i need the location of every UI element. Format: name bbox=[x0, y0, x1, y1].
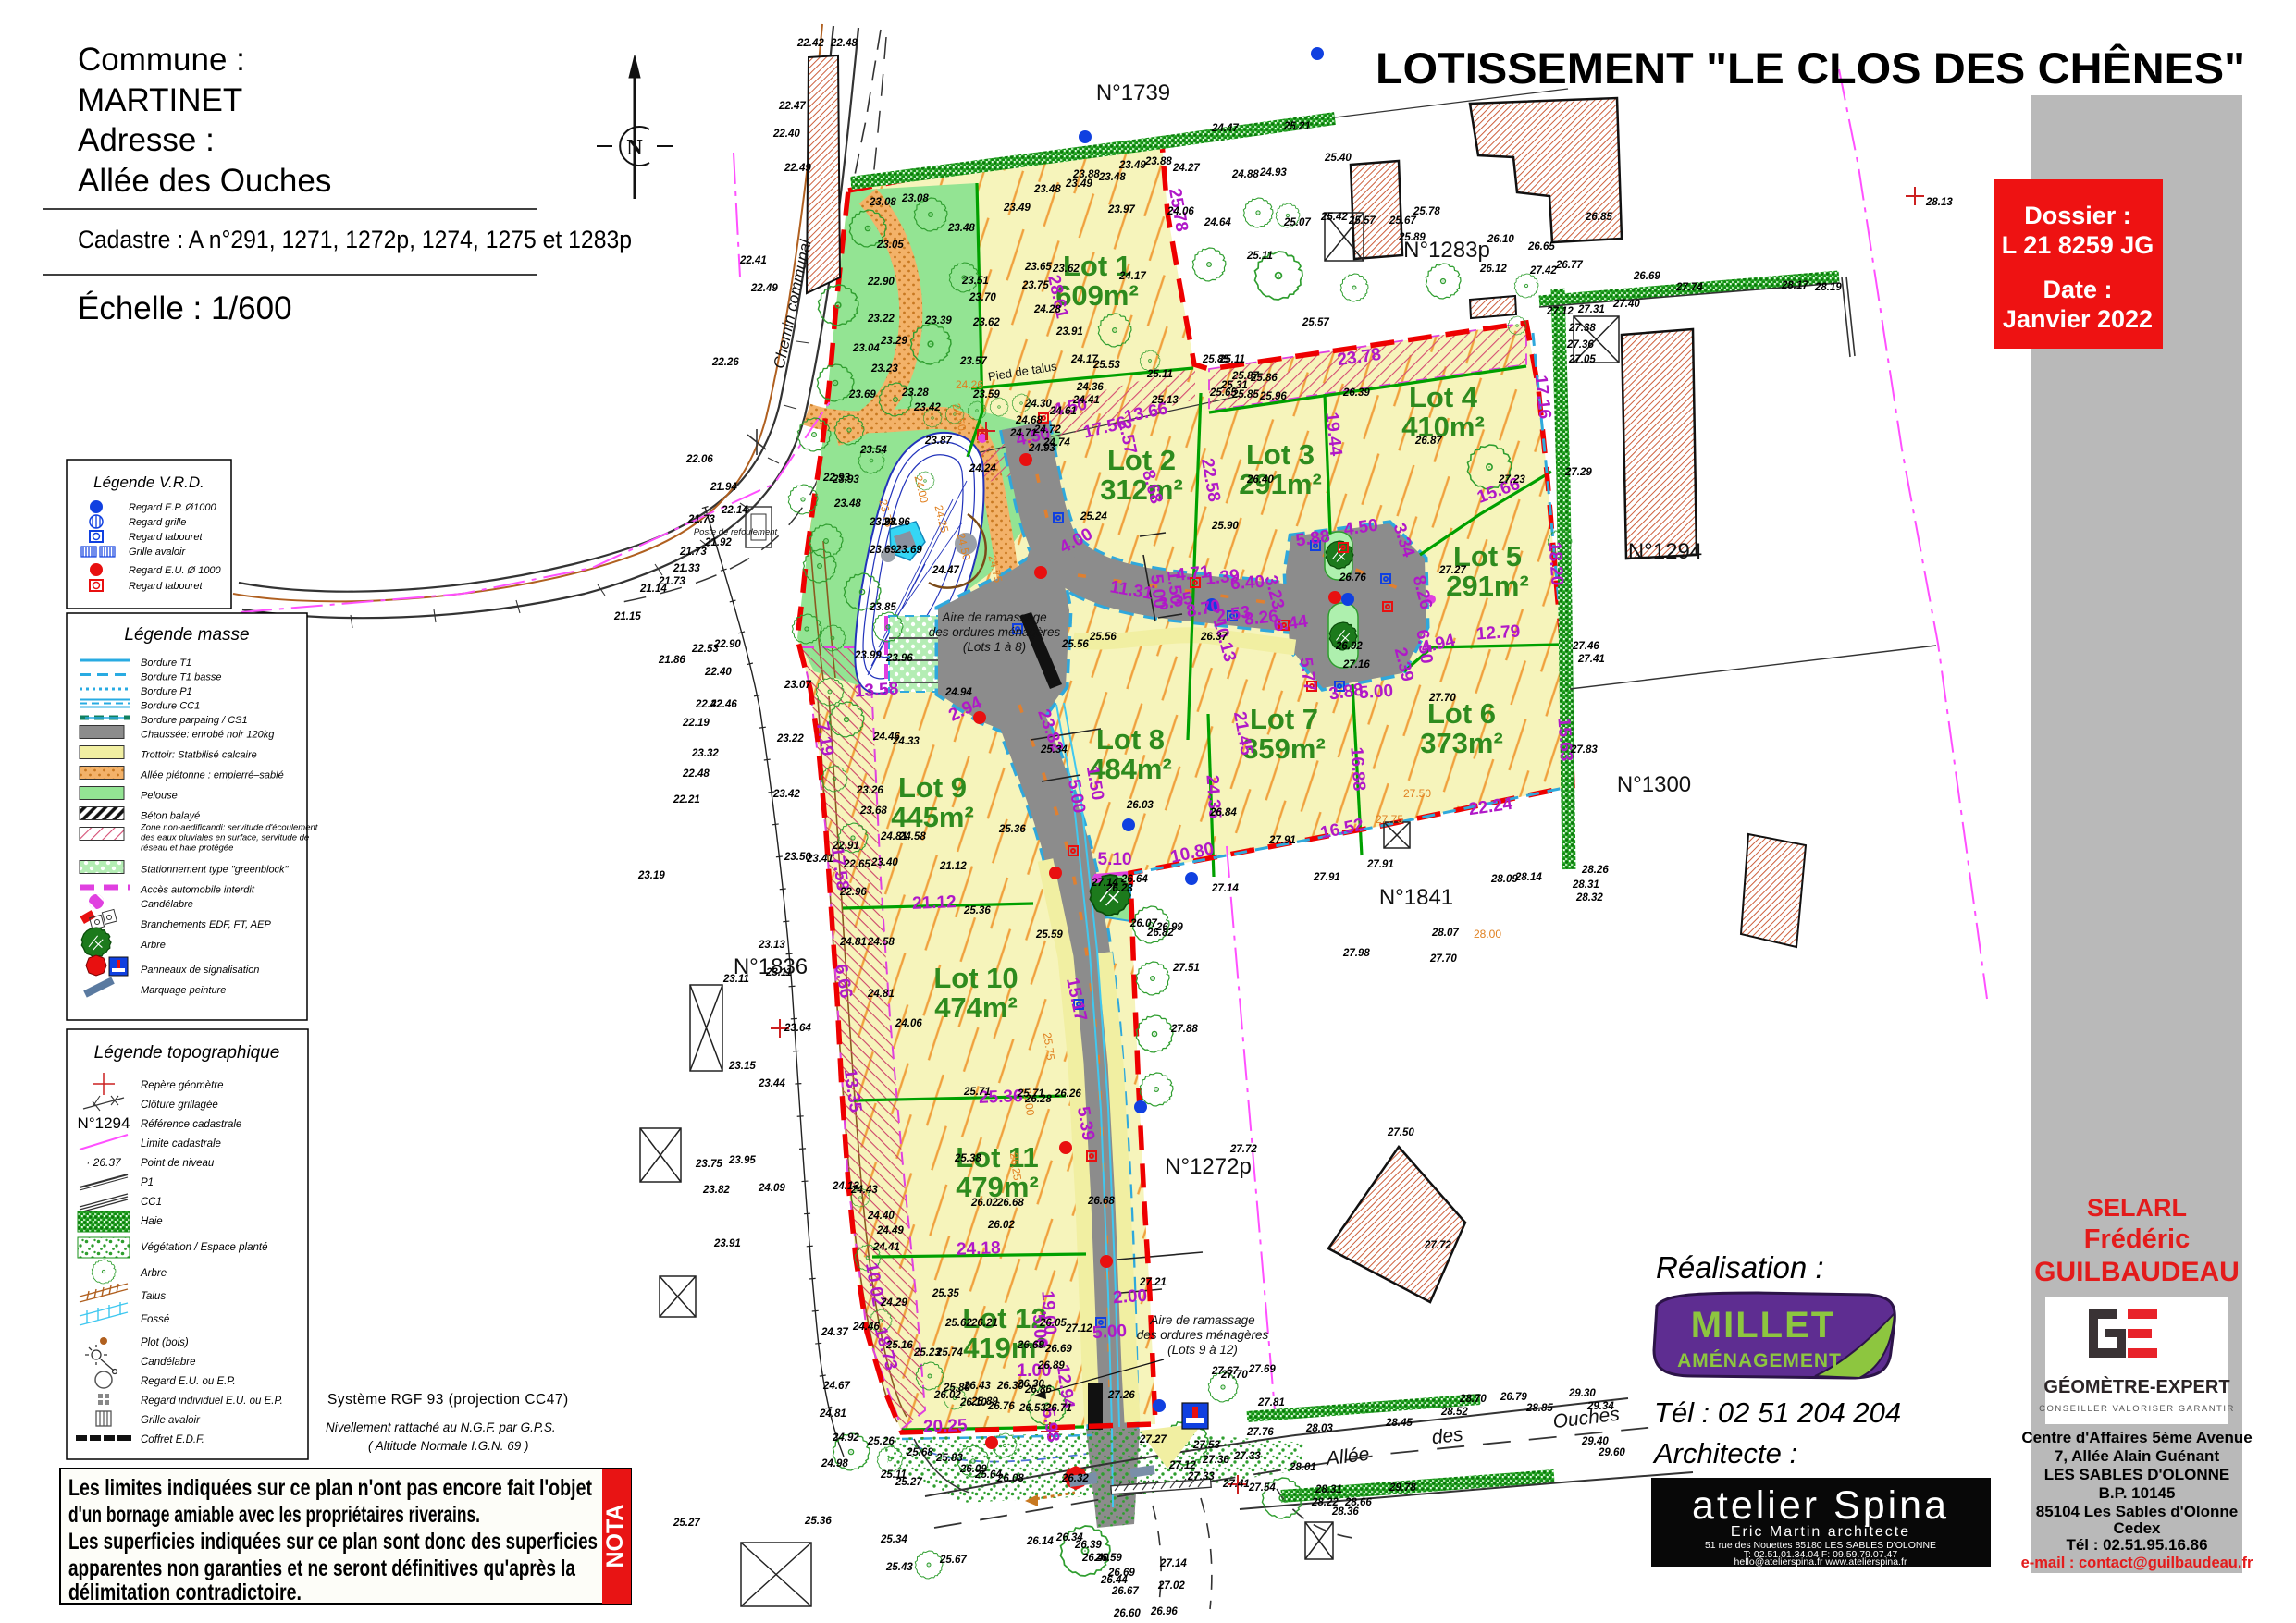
svg-text:21.12: 21.12 bbox=[912, 892, 957, 914]
svg-text:21.73: 21.73 bbox=[679, 547, 707, 558]
svg-text:Lot 3: Lot 3 bbox=[1246, 438, 1315, 471]
svg-text:23.62: 23.62 bbox=[1052, 264, 1080, 275]
svg-text:25.36: 25.36 bbox=[804, 1516, 832, 1527]
svg-text:25.43: 25.43 bbox=[885, 1562, 913, 1573]
svg-text:28.26: 28.26 bbox=[1581, 865, 1609, 876]
svg-text:25.23: 25.23 bbox=[913, 1347, 941, 1359]
svg-text:27.14: 27.14 bbox=[1211, 883, 1239, 894]
svg-text:21.92: 21.92 bbox=[704, 537, 732, 548]
svg-text:P1: P1 bbox=[141, 1177, 154, 1188]
svg-text:23.68: 23.68 bbox=[859, 805, 887, 817]
svg-text:23.96: 23.96 bbox=[885, 653, 913, 664]
svg-text:Allée des Ouches: Allée des Ouches bbox=[78, 163, 331, 199]
svg-text:Accès automobile interdit: Accès automobile interdit bbox=[140, 885, 255, 896]
svg-text:23.23: 23.23 bbox=[870, 363, 898, 375]
svg-text:24.72: 24.72 bbox=[1033, 424, 1061, 436]
svg-text:5.10: 5.10 bbox=[1098, 850, 1132, 869]
svg-text:25.36: 25.36 bbox=[963, 905, 991, 916]
svg-text:27.02: 27.02 bbox=[1157, 1580, 1185, 1592]
svg-text:25.56: 25.56 bbox=[1089, 632, 1117, 643]
svg-text:Bordure T1: Bordure T1 bbox=[141, 658, 191, 669]
svg-text:22.48: 22.48 bbox=[830, 38, 858, 49]
svg-text:25.40: 25.40 bbox=[1324, 153, 1352, 164]
svg-text:27.12: 27.12 bbox=[1065, 1323, 1092, 1334]
svg-text:373m²: 373m² bbox=[1420, 727, 1503, 759]
svg-text:24.06: 24.06 bbox=[1167, 206, 1194, 217]
svg-text:25.13: 25.13 bbox=[1151, 395, 1179, 406]
svg-text:26.02: 26.02 bbox=[970, 1198, 998, 1209]
svg-text:N°1300: N°1300 bbox=[1617, 772, 1691, 797]
svg-text:23.69: 23.69 bbox=[848, 389, 876, 400]
svg-text:26.14: 26.14 bbox=[1026, 1536, 1054, 1547]
svg-text:23.64: 23.64 bbox=[784, 1023, 811, 1034]
svg-text:23.48: 23.48 bbox=[947, 223, 975, 234]
svg-text:Plot (bois): Plot (bois) bbox=[141, 1337, 189, 1348]
svg-text:2.00: 2.00 bbox=[1112, 1286, 1147, 1309]
svg-text:26.37: 26.37 bbox=[1200, 632, 1228, 643]
svg-text:28.19: 28.19 bbox=[1814, 282, 1842, 293]
svg-text:25.21: 25.21 bbox=[1283, 121, 1311, 132]
svg-text:des: des bbox=[1430, 1423, 1464, 1448]
svg-text:21.12: 21.12 bbox=[939, 861, 967, 872]
svg-text:26.85: 26.85 bbox=[1585, 212, 1612, 223]
svg-text:22.14: 22.14 bbox=[721, 505, 748, 516]
svg-text:( Altitude Normale I.G.N. 6: ( Altitude Normale I.G.N. 69 ) bbox=[368, 1439, 529, 1453]
svg-text:e-mail : contact@guilbaudeau.f: e-mail : contact@guilbaudeau.fr bbox=[2021, 1555, 2253, 1571]
svg-text:MILLET: MILLET bbox=[1691, 1305, 1835, 1346]
svg-text:23.05: 23.05 bbox=[876, 240, 904, 251]
svg-text:27.26: 27.26 bbox=[1107, 1390, 1135, 1401]
svg-text:23.42: 23.42 bbox=[772, 789, 800, 800]
svg-text:LOTISSEMENT "LE CLOS DES CHÊNE: LOTISSEMENT "LE CLOS DES CHÊNES" bbox=[1376, 43, 2245, 92]
svg-text:26.69: 26.69 bbox=[1633, 271, 1660, 282]
svg-text:27.74: 27.74 bbox=[1675, 282, 1703, 293]
svg-text:Nivellement rattaché au N.G: Nivellement rattaché au N.G.F. par G.P.S… bbox=[326, 1420, 556, 1434]
svg-text:Regard E.U. ou E.P.: Regard E.U. ou E.P. bbox=[141, 1376, 236, 1387]
svg-text:25.90: 25.90 bbox=[1211, 521, 1239, 532]
svg-text:27.53: 27.53 bbox=[1192, 1440, 1220, 1451]
svg-text:23.11: 23.11 bbox=[722, 974, 749, 985]
svg-text:25.35: 25.35 bbox=[932, 1288, 959, 1299]
svg-text:25.57: 25.57 bbox=[1348, 215, 1376, 227]
svg-text:26.40: 26.40 bbox=[1246, 474, 1274, 486]
svg-text:Regard E.U. Ø 1000: Regard E.U. Ø 1000 bbox=[129, 565, 222, 576]
svg-text:26.21: 26.21 bbox=[970, 1318, 998, 1329]
svg-text:26.10: 26.10 bbox=[1487, 234, 1514, 245]
svg-text:Légende masse: Légende masse bbox=[124, 625, 249, 645]
svg-text:27.29: 27.29 bbox=[1564, 467, 1592, 478]
svg-text:N: N bbox=[626, 136, 643, 160]
svg-text:24.33: 24.33 bbox=[892, 736, 920, 747]
svg-text:Légende topographique: Légende topographique bbox=[94, 1043, 280, 1063]
svg-text:Regard individuel E.U. ou E.P.: Regard individuel E.U. ou E.P. bbox=[141, 1396, 283, 1407]
svg-text:27.14: 27.14 bbox=[1091, 878, 1118, 889]
svg-text:23.85: 23.85 bbox=[869, 602, 896, 613]
svg-text:Référence cadastrale: Référence cadastrale bbox=[141, 1119, 241, 1130]
svg-text:28.45: 28.45 bbox=[1385, 1418, 1413, 1429]
svg-text:25.62: 25.62 bbox=[944, 1318, 972, 1329]
svg-text:Lot 4: Lot 4 bbox=[1409, 381, 1478, 413]
svg-text:26.92: 26.92 bbox=[1335, 641, 1363, 652]
svg-text:Eric Martin architecte: Eric Martin architecte bbox=[1731, 1524, 1910, 1540]
svg-text:23.97: 23.97 bbox=[1107, 204, 1135, 215]
svg-text:23.87: 23.87 bbox=[924, 436, 952, 447]
svg-text:26.03: 26.03 bbox=[1126, 800, 1154, 811]
svg-text:27.40: 27.40 bbox=[1612, 299, 1640, 310]
svg-text:28.01: 28.01 bbox=[1289, 1462, 1316, 1473]
svg-text:21.73: 21.73 bbox=[687, 514, 715, 525]
svg-text:24.92: 24.92 bbox=[832, 1432, 859, 1444]
svg-text:Grille avaloir: Grille avaloir bbox=[141, 1415, 201, 1426]
svg-text:24.29: 24.29 bbox=[880, 1297, 907, 1309]
svg-text:29.30: 29.30 bbox=[1568, 1388, 1596, 1399]
svg-text:Lot 8: Lot 8 bbox=[1096, 723, 1165, 756]
svg-text:26.67: 26.67 bbox=[1111, 1586, 1139, 1597]
svg-text:23.42: 23.42 bbox=[913, 402, 941, 413]
svg-text:24.74: 24.74 bbox=[1043, 437, 1070, 449]
svg-text:23.50: 23.50 bbox=[784, 852, 811, 863]
svg-text:27.72: 27.72 bbox=[1229, 1144, 1257, 1155]
svg-text:N°1272p: N°1272p bbox=[1165, 1154, 1252, 1179]
svg-text:24.67: 24.67 bbox=[822, 1381, 850, 1392]
svg-text:24.17: 24.17 bbox=[1118, 271, 1146, 282]
svg-text:22.46: 22.46 bbox=[710, 699, 737, 710]
svg-text:29.60: 29.60 bbox=[1598, 1447, 1625, 1458]
svg-text:22.21: 22.21 bbox=[673, 794, 700, 805]
svg-text:27.88: 27.88 bbox=[1170, 1024, 1198, 1035]
svg-text:Fossé: Fossé bbox=[141, 1314, 169, 1325]
svg-text:24.47: 24.47 bbox=[932, 565, 959, 576]
svg-text:Chaussée: enrobé noir 120kg: Chaussée: enrobé noir 120kg bbox=[141, 730, 275, 741]
svg-text:25.53: 25.53 bbox=[1092, 360, 1120, 371]
svg-text:27.46: 27.46 bbox=[1572, 641, 1599, 652]
svg-text:23.15: 23.15 bbox=[728, 1061, 756, 1072]
svg-text:28.03: 28.03 bbox=[1305, 1423, 1333, 1434]
svg-text:Point de niveau: Point de niveau bbox=[141, 1158, 215, 1169]
svg-text:27.31: 27.31 bbox=[1577, 304, 1605, 315]
svg-text:24.93: 24.93 bbox=[1259, 167, 1287, 178]
svg-text:24.37: 24.37 bbox=[821, 1327, 848, 1338]
svg-text:27.27: 27.27 bbox=[1438, 565, 1466, 576]
svg-text:410m²: 410m² bbox=[1401, 411, 1485, 443]
svg-text:25.26: 25.26 bbox=[867, 1436, 895, 1447]
svg-text:Lot 10: Lot 10 bbox=[933, 962, 1018, 994]
svg-text:27.70: 27.70 bbox=[1429, 953, 1457, 965]
svg-text:25.96: 25.96 bbox=[1259, 391, 1287, 402]
svg-text:23.54: 23.54 bbox=[859, 445, 887, 456]
svg-text:26.30: 26.30 bbox=[1017, 1379, 1044, 1390]
svg-text:23.22: 23.22 bbox=[776, 733, 804, 744]
svg-text:23.39: 23.39 bbox=[924, 315, 952, 326]
svg-text:28.70: 28.70 bbox=[1459, 1394, 1487, 1405]
svg-text:27.36: 27.36 bbox=[1202, 1455, 1229, 1466]
svg-text:Stationnement type "greenblock: Stationnement type "greenblock" bbox=[141, 865, 290, 876]
svg-text:27.83: 27.83 bbox=[1570, 744, 1598, 756]
svg-text:25.56: 25.56 bbox=[1061, 639, 1089, 650]
svg-text:24.47: 24.47 bbox=[1211, 123, 1239, 134]
svg-text:N°1294: N°1294 bbox=[78, 1114, 130, 1132]
svg-text:24.71: 24.71 bbox=[1009, 428, 1037, 439]
svg-text:atelier Spina: atelier Spina bbox=[1692, 1483, 1949, 1528]
svg-text:5.00: 5.00 bbox=[1092, 1322, 1127, 1344]
svg-text:23.59: 23.59 bbox=[972, 389, 1000, 400]
svg-text:Cedex: Cedex bbox=[2113, 1519, 2161, 1537]
svg-text:Tél : 02 51 204 204: Tél : 02 51 204 204 bbox=[1654, 1396, 1901, 1429]
svg-text:22.19: 22.19 bbox=[682, 718, 710, 729]
svg-text:23.88: 23.88 bbox=[1144, 156, 1172, 167]
svg-text:85104 Les Sables d'Olonne: 85104 Les Sables d'Olonne bbox=[2036, 1503, 2239, 1520]
svg-text:NOTA: NOTA bbox=[602, 1505, 628, 1568]
svg-text:25.86: 25.86 bbox=[1250, 373, 1278, 384]
svg-text:Haie: Haie bbox=[141, 1216, 163, 1227]
svg-text:23.75: 23.75 bbox=[1021, 280, 1049, 291]
svg-text:27.75: 27.75 bbox=[1376, 813, 1403, 826]
svg-text:27.91: 27.91 bbox=[1268, 835, 1296, 846]
svg-text:23.19: 23.19 bbox=[637, 870, 665, 881]
svg-text:28.32: 28.32 bbox=[1575, 892, 1603, 904]
svg-text:Candélabre: Candélabre bbox=[141, 1357, 195, 1368]
svg-text:25.67: 25.67 bbox=[1389, 215, 1416, 227]
svg-text:26.69: 26.69 bbox=[1044, 1344, 1072, 1355]
svg-text:23.32: 23.32 bbox=[691, 748, 719, 759]
svg-text:23.99: 23.99 bbox=[854, 650, 882, 661]
svg-text:24.98: 24.98 bbox=[821, 1458, 848, 1469]
svg-text:21.15: 21.15 bbox=[613, 611, 641, 622]
svg-text:hello@atelierspina.fr w: hello@atelierspina.fr www.atelierspina.f… bbox=[1734, 1556, 1907, 1568]
svg-text:28.31: 28.31 bbox=[1315, 1484, 1342, 1495]
svg-text:23.91: 23.91 bbox=[713, 1238, 741, 1249]
svg-text:28.00: 28.00 bbox=[1474, 928, 1501, 941]
svg-text:445m²: 445m² bbox=[891, 801, 974, 833]
svg-text:24.06: 24.06 bbox=[895, 1018, 922, 1029]
svg-text:28.17: 28.17 bbox=[1781, 280, 1808, 291]
svg-text:28.14: 28.14 bbox=[1514, 872, 1542, 883]
svg-text:26.99: 26.99 bbox=[1155, 922, 1183, 933]
svg-text:27.72: 27.72 bbox=[1424, 1240, 1451, 1251]
svg-text:22.91: 22.91 bbox=[832, 841, 859, 852]
svg-text:délimitation contradictoire.: délimitation contradictoire. bbox=[68, 1580, 302, 1605]
svg-text:Bordure T1 basse: Bordure T1 basse bbox=[141, 672, 221, 683]
svg-text:29.78: 29.78 bbox=[1389, 1482, 1416, 1494]
svg-text:Les superficies indiquées sur: Les superficies indiquées sur ce plan so… bbox=[68, 1529, 598, 1555]
svg-text:26.68: 26.68 bbox=[1087, 1196, 1115, 1207]
svg-text:26.07: 26.07 bbox=[1129, 918, 1157, 929]
svg-text:22.90: 22.90 bbox=[713, 639, 741, 650]
svg-text:27.23: 27.23 bbox=[1498, 474, 1525, 486]
svg-text:29.40: 29.40 bbox=[1581, 1436, 1609, 1447]
svg-text:Branchements EDF, FT, AEP: Branchements EDF, FT, AEP bbox=[141, 919, 271, 930]
svg-text:26.05: 26.05 bbox=[1039, 1318, 1067, 1329]
svg-text:Bordure CC1: Bordure CC1 bbox=[141, 701, 200, 712]
svg-text:1.50: 1.50 bbox=[1163, 570, 1186, 606]
svg-text:24.94: 24.94 bbox=[944, 687, 972, 698]
svg-text:24.40: 24.40 bbox=[867, 1211, 895, 1222]
svg-text:27.70: 27.70 bbox=[1428, 693, 1456, 704]
svg-text:23.82: 23.82 bbox=[702, 1185, 730, 1196]
svg-text:AMÉNAGEMENT: AMÉNAGEMENT bbox=[1677, 1350, 1842, 1371]
svg-text:26.59: 26.59 bbox=[1094, 1553, 1122, 1564]
svg-text:23.95: 23.95 bbox=[728, 1155, 756, 1166]
svg-text:26.84: 26.84 bbox=[1209, 807, 1237, 818]
svg-text:24.46: 24.46 bbox=[852, 1322, 880, 1333]
svg-text:Lot 7: Lot 7 bbox=[1250, 703, 1318, 735]
svg-text:SELARL: SELARL bbox=[2087, 1194, 2187, 1222]
svg-text:23.11: 23.11 bbox=[765, 967, 792, 978]
svg-text:22.40: 22.40 bbox=[704, 667, 732, 678]
svg-text:25.27: 25.27 bbox=[673, 1518, 700, 1529]
svg-text:Arbre: Arbre bbox=[140, 1268, 167, 1279]
svg-text:26.26: 26.26 bbox=[1054, 1088, 1081, 1100]
svg-text:Marquage peinture: Marquage peinture bbox=[141, 985, 226, 996]
svg-text:23.48: 23.48 bbox=[1098, 172, 1126, 183]
svg-text:29.34: 29.34 bbox=[1586, 1401, 1614, 1412]
svg-text:Zone non-aedificandi: servitud: Zone non-aedificandi: servitude d'écoule… bbox=[140, 823, 318, 833]
svg-text:26.10: 26.10 bbox=[959, 1397, 987, 1408]
svg-text:25.11: 25.11 bbox=[1218, 354, 1245, 365]
svg-text:23.04: 23.04 bbox=[852, 343, 880, 354]
svg-text:21.94: 21.94 bbox=[710, 482, 737, 493]
svg-text:25.38: 25.38 bbox=[954, 1153, 981, 1164]
svg-text:27.12: 27.12 bbox=[1168, 1460, 1196, 1471]
svg-text:Clôture grillagée: Clôture grillagée bbox=[141, 1100, 218, 1111]
svg-text:27.42: 27.42 bbox=[1529, 265, 1557, 277]
svg-text:27.69: 27.69 bbox=[1248, 1364, 1276, 1375]
svg-text:21.14: 21.14 bbox=[639, 584, 667, 595]
svg-text:25.11: 25.11 bbox=[1146, 369, 1173, 380]
svg-text:28.36: 28.36 bbox=[1331, 1506, 1359, 1518]
svg-text:Repère géomètre: Repère géomètre bbox=[141, 1080, 224, 1091]
svg-text:13.58: 13.58 bbox=[854, 679, 899, 701]
svg-text:28.13: 28.13 bbox=[1925, 197, 1953, 208]
svg-text:Coffret E.D.F.: Coffret E.D.F. bbox=[141, 1434, 204, 1445]
svg-text:27.14: 27.14 bbox=[1159, 1558, 1187, 1569]
svg-text:27.81: 27.81 bbox=[1257, 1397, 1285, 1408]
svg-text:474m²: 474m² bbox=[934, 991, 1018, 1024]
svg-text:Les limites indiquées sur ce p: Les limites indiquées sur ce plan n'ont … bbox=[68, 1475, 593, 1501]
svg-text:Architecte :: Architecte : bbox=[1652, 1437, 1797, 1469]
svg-text:23.48: 23.48 bbox=[1033, 184, 1061, 195]
svg-text:25.57: 25.57 bbox=[1302, 317, 1329, 328]
svg-text:Limite cadastrale: Limite cadastrale bbox=[141, 1138, 221, 1150]
svg-text:24.18: 24.18 bbox=[957, 1238, 1001, 1260]
svg-text:27.51: 27.51 bbox=[1172, 963, 1200, 974]
svg-text:Bordure parpaing / CS1: Bordure parpaing / CS1 bbox=[141, 715, 248, 726]
svg-text:24.81: 24.81 bbox=[839, 937, 867, 948]
svg-text:25.16: 25.16 bbox=[885, 1340, 913, 1351]
svg-text:Échelle : 1/600: Échelle : 1/600 bbox=[78, 290, 292, 326]
svg-text:26.60: 26.60 bbox=[1113, 1608, 1141, 1619]
svg-text:23.13: 23.13 bbox=[758, 940, 785, 951]
svg-text:26.69: 26.69 bbox=[1017, 1340, 1044, 1351]
svg-text:12.79: 12.79 bbox=[1475, 621, 1521, 644]
svg-text:26.02: 26.02 bbox=[933, 1390, 961, 1401]
svg-text:24.61: 24.61 bbox=[1049, 406, 1077, 417]
svg-text:N°1294: N°1294 bbox=[1628, 539, 1702, 564]
svg-text:24.41: 24.41 bbox=[872, 1242, 900, 1253]
svg-text:Pelouse: Pelouse bbox=[141, 791, 178, 802]
svg-text:22.26: 22.26 bbox=[711, 357, 739, 368]
svg-text:23.28: 23.28 bbox=[901, 387, 929, 399]
svg-text:27.36: 27.36 bbox=[1566, 339, 1594, 350]
svg-text:24.81: 24.81 bbox=[867, 989, 895, 1000]
svg-text:22.40: 22.40 bbox=[772, 129, 800, 140]
svg-text:réseau et haie protégée: réseau et haie protégée bbox=[141, 843, 233, 854]
svg-text:23.88: 23.88 bbox=[1072, 169, 1100, 180]
svg-text:d'un bornage amiable avec les: d'un bornage amiable avec les propriétai… bbox=[68, 1502, 480, 1528]
svg-text:25.71: 25.71 bbox=[1017, 1088, 1044, 1100]
svg-text:5.00: 5.00 bbox=[1358, 682, 1393, 704]
svg-text:LES SABLES D'OLONNE: LES SABLES D'OLONNE bbox=[2044, 1466, 2230, 1483]
svg-text:26.71: 26.71 bbox=[1044, 1403, 1072, 1414]
svg-text:GÉOMÈTRE-EXPERT: GÉOMÈTRE-EXPERT bbox=[2043, 1376, 2229, 1397]
svg-text:26.08: 26.08 bbox=[996, 1473, 1024, 1484]
svg-text:22.93: 22.93 bbox=[822, 473, 850, 484]
svg-text:24.09: 24.09 bbox=[758, 1183, 785, 1194]
svg-text:23.29: 23.29 bbox=[880, 336, 907, 347]
svg-text:Béton balayé: Béton balayé bbox=[141, 811, 200, 822]
svg-text:Grille avaloir: Grille avaloir bbox=[129, 547, 186, 558]
svg-text:23.40: 23.40 bbox=[870, 857, 898, 868]
svg-text:16.88: 16.88 bbox=[1346, 746, 1368, 792]
svg-text:21.86: 21.86 bbox=[658, 655, 685, 666]
svg-text:28.85: 28.85 bbox=[1525, 1403, 1553, 1414]
svg-text:Regard grille: Regard grille bbox=[129, 517, 186, 528]
svg-text:27.33: 27.33 bbox=[1233, 1451, 1261, 1462]
svg-text:25.42: 25.42 bbox=[1320, 212, 1348, 223]
svg-text:MARTINET: MARTINET bbox=[78, 82, 242, 118]
svg-text:23.07: 23.07 bbox=[784, 680, 811, 691]
svg-text:Panneaux de signalisation: Panneaux de signalisation bbox=[141, 965, 259, 976]
svg-text:27.54: 27.54 bbox=[1248, 1482, 1276, 1494]
svg-text:23.69: 23.69 bbox=[895, 545, 922, 556]
svg-text:23.65: 23.65 bbox=[1024, 262, 1052, 273]
svg-text:27.12: 27.12 bbox=[1546, 306, 1574, 317]
svg-text:21.33: 21.33 bbox=[673, 563, 700, 574]
svg-text:22.96: 22.96 bbox=[839, 887, 867, 898]
svg-text:27.50: 27.50 bbox=[1387, 1127, 1414, 1138]
svg-text:24.49: 24.49 bbox=[876, 1225, 904, 1236]
svg-text:Trottoir: Statbilisé calcaire: Trottoir: Statbilisé calcaire bbox=[141, 750, 257, 761]
svg-text:23.75: 23.75 bbox=[695, 1159, 722, 1170]
svg-text:25.89: 25.89 bbox=[1398, 232, 1426, 243]
svg-text:27.16: 27.16 bbox=[1342, 659, 1370, 670]
svg-text:25.59: 25.59 bbox=[1035, 929, 1063, 941]
svg-text:Système RGF 93 (projection: Système RGF 93 (projection CC47) bbox=[327, 1392, 569, 1408]
svg-text:24.64: 24.64 bbox=[1204, 217, 1231, 228]
svg-text:25.24: 25.24 bbox=[1080, 511, 1107, 523]
svg-text:22.65: 22.65 bbox=[843, 859, 870, 870]
svg-text:28.31: 28.31 bbox=[1572, 879, 1599, 891]
svg-text:27.33: 27.33 bbox=[1187, 1471, 1215, 1482]
svg-text:GUILBAUDEAU: GUILBAUDEAU bbox=[2034, 1257, 2240, 1287]
svg-text:26.39: 26.39 bbox=[1342, 387, 1370, 399]
svg-text:N°1739: N°1739 bbox=[1096, 80, 1170, 105]
svg-text:B.P. 10145: B.P. 10145 bbox=[2099, 1484, 2176, 1502]
svg-text:25.78: 25.78 bbox=[1413, 206, 1440, 217]
svg-text:23.26: 23.26 bbox=[856, 785, 883, 796]
svg-text:L 21 8259 JG: L 21 8259 JG bbox=[2002, 231, 2154, 259]
svg-text:26.02: 26.02 bbox=[987, 1220, 1015, 1231]
svg-text:23.51: 23.51 bbox=[961, 276, 989, 287]
svg-text:23.08: 23.08 bbox=[869, 197, 896, 208]
svg-text:27.50: 27.50 bbox=[1403, 787, 1431, 800]
svg-text:CC1: CC1 bbox=[141, 1197, 162, 1208]
svg-text:Réalisation :: Réalisation : bbox=[1656, 1250, 1824, 1285]
svg-text:Talus: Talus bbox=[141, 1291, 166, 1302]
svg-text:(Lots 1 à 8): (Lots 1 à 8) bbox=[963, 640, 1026, 654]
svg-text:24.27: 24.27 bbox=[1172, 163, 1200, 174]
svg-text:23.96: 23.96 bbox=[883, 517, 910, 528]
